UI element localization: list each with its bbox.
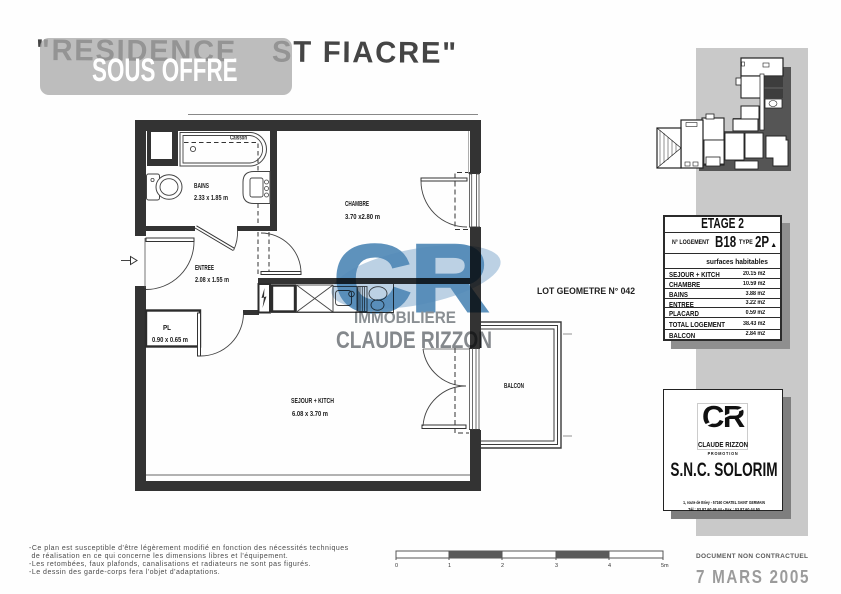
- svg-text:CLAUDE RIZZON: CLAUDE RIZZON: [336, 327, 492, 354]
- svg-text:IMMOBILIERE: IMMOBILIERE: [354, 308, 456, 327]
